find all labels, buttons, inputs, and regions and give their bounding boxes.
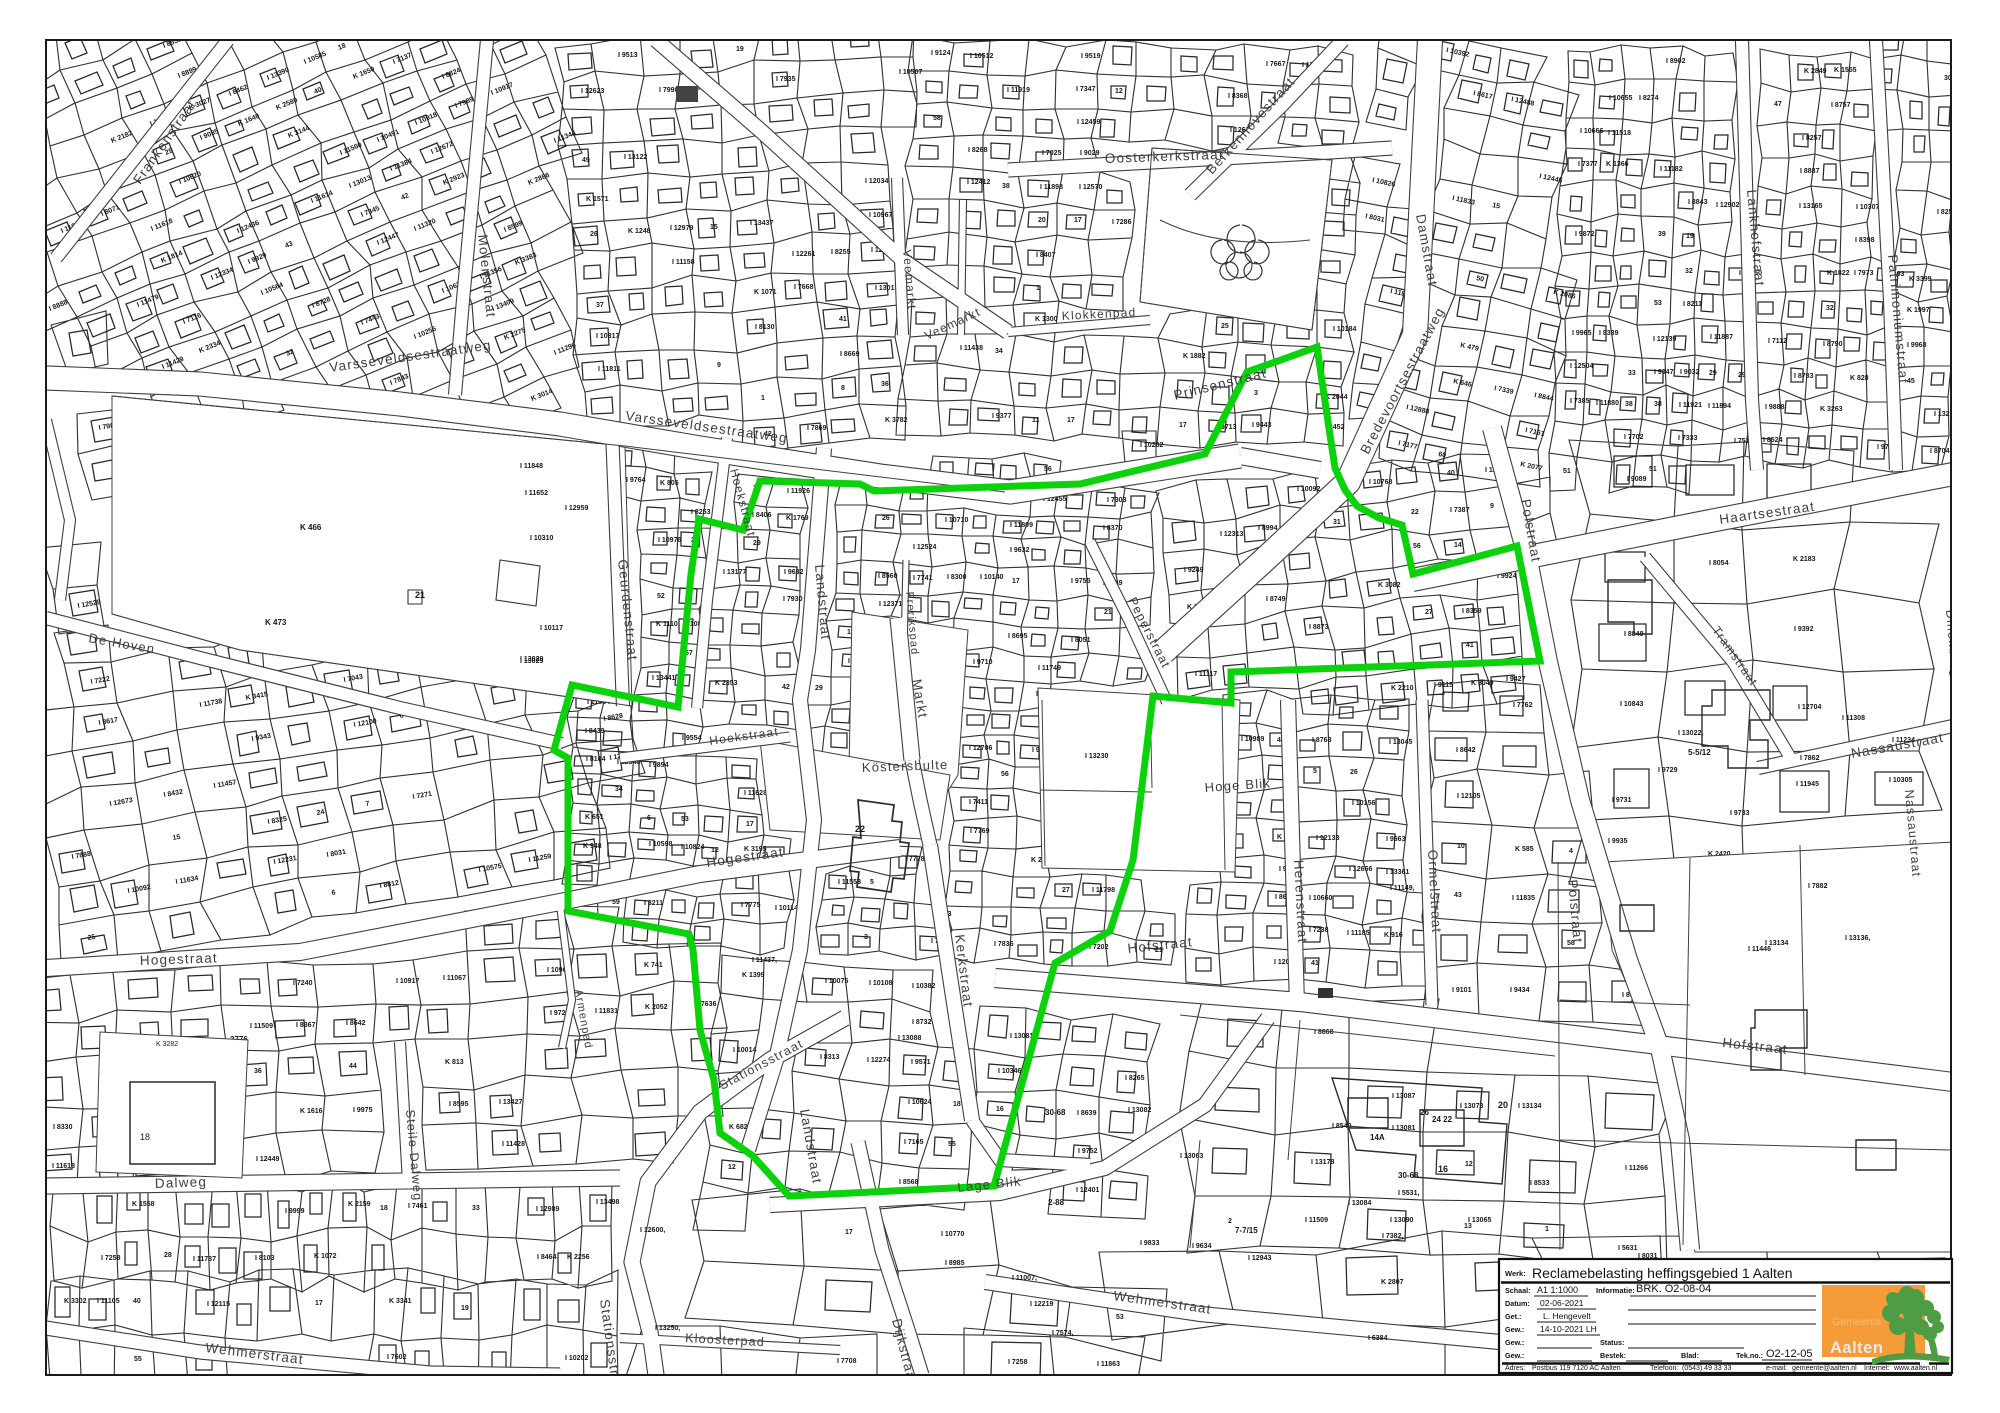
- svg-text:I 10507: I 10507: [899, 69, 922, 76]
- svg-text:I 8300: I 8300: [947, 574, 967, 581]
- svg-text:I 11898: I 11898: [1040, 184, 1063, 191]
- svg-text:I 8054: I 8054: [1709, 560, 1729, 567]
- svg-text:I 10305: I 10305: [1889, 777, 1912, 784]
- svg-text:K 1248: K 1248: [628, 228, 651, 235]
- svg-text:17: 17: [315, 1300, 323, 1307]
- svg-text:I 8313: I 8313: [820, 1054, 840, 1061]
- svg-text:Adres:: Adres:: [1505, 1365, 1525, 1372]
- svg-text:8: 8: [841, 385, 845, 392]
- svg-text:I 10598: I 10598: [649, 841, 672, 848]
- svg-text:42: 42: [782, 684, 790, 691]
- svg-text:I 7025: I 7025: [1042, 150, 1062, 157]
- svg-text:I 12979: I 12979: [670, 225, 693, 232]
- svg-text:7-7/15: 7-7/15: [1235, 1226, 1258, 1235]
- svg-text:K 741: K 741: [644, 962, 663, 969]
- svg-text:47: 47: [1774, 101, 1782, 108]
- svg-text:I 11266: I 11266: [1625, 1165, 1648, 1172]
- svg-text:I 5531,: I 5531,: [1398, 1190, 1419, 1197]
- svg-text:I 9968: I 9968: [1907, 342, 1927, 349]
- svg-text:I 12034: I 12034: [865, 178, 888, 185]
- svg-text:I 8257: I 8257: [1802, 135, 1822, 142]
- svg-text:K 948: K 948: [583, 843, 602, 850]
- svg-text:K 473: K 473: [265, 618, 287, 627]
- svg-text:I 9733: I 9733: [1730, 810, 1750, 817]
- svg-text:Datum:: Datum:: [1505, 1299, 1530, 1308]
- svg-text:I 12449: I 12449: [256, 1156, 279, 1163]
- svg-text:K 1558: K 1558: [132, 1201, 155, 1208]
- svg-text:52: 52: [657, 593, 665, 600]
- svg-text:I 13165: I 13165: [1799, 203, 1822, 210]
- svg-text:2-88: 2-88: [1048, 1198, 1065, 1207]
- svg-text:I 7668: I 7668: [794, 284, 814, 291]
- svg-text:19: 19: [461, 1305, 469, 1312]
- svg-text:K 3302: K 3302: [64, 1298, 87, 1305]
- svg-text:17: 17: [1012, 578, 1020, 585]
- svg-text:4: 4: [1569, 848, 1573, 855]
- svg-text:Aalten: Aalten: [1830, 1339, 1883, 1357]
- svg-text:I 10202: I 10202: [565, 1355, 588, 1362]
- svg-text:K 813: K 813: [445, 1059, 464, 1066]
- svg-text:I 10117: I 10117: [540, 625, 563, 632]
- svg-text:21: 21: [1104, 609, 1112, 616]
- svg-text:I 8732: I 8732: [912, 1019, 932, 1026]
- svg-text:K 3399: K 3399: [1909, 276, 1932, 283]
- svg-text:53: 53: [681, 816, 689, 823]
- svg-text:I 9124: I 9124: [931, 50, 951, 57]
- svg-text:I 7708: I 7708: [837, 1358, 857, 1365]
- svg-text:49: 49: [582, 157, 590, 164]
- svg-text:I 13081: I 13081: [1010, 1033, 1033, 1040]
- svg-text:I 13361: I 13361: [1386, 869, 1409, 876]
- svg-text:I 8211: I 8211: [1683, 301, 1702, 308]
- svg-text:17: 17: [1067, 417, 1075, 424]
- svg-text:I 10710: I 10710: [945, 517, 968, 524]
- svg-text:K 1300: K 1300: [1035, 316, 1058, 323]
- svg-text:5: 5: [870, 879, 874, 886]
- svg-text:O2-12-05: O2-12-05: [1766, 1348, 1812, 1360]
- svg-text:Gemeente: Gemeente: [1832, 1316, 1881, 1328]
- svg-text:12: 12: [1465, 1161, 1473, 1168]
- svg-text:I 10967: I 10967: [869, 212, 892, 219]
- svg-text:I 11848: I 11848: [520, 463, 543, 470]
- svg-text:41: 41: [839, 316, 847, 323]
- svg-text:I 10317: I 10317: [596, 333, 619, 340]
- svg-text:I 9032: I 9032: [1680, 369, 1700, 376]
- svg-text:I 9872: I 9872: [1575, 231, 1595, 238]
- svg-text:I 9519: I 9519: [1081, 53, 1101, 60]
- svg-text:I 10140: I 10140: [980, 574, 1003, 581]
- svg-text:Telefoon:: Telefoon:: [1650, 1365, 1678, 1372]
- svg-text:30-68: 30-68: [1045, 1108, 1066, 1117]
- svg-text:I 7775: I 7775: [741, 902, 761, 909]
- svg-text:I 11628: I 11628: [744, 790, 767, 797]
- svg-text:I 9632: I 9632: [784, 569, 804, 576]
- svg-text:K 1071: K 1071: [754, 289, 777, 296]
- svg-text:I 8398: I 8398: [1855, 237, 1875, 244]
- svg-text:19: 19: [736, 46, 744, 53]
- svg-text:I 8253: I 8253: [691, 509, 711, 516]
- svg-text:25: 25: [1221, 323, 1229, 330]
- svg-text:29: 29: [753, 540, 761, 547]
- svg-text:I 8368: I 8368: [1228, 93, 1248, 100]
- svg-text:I 10824: I 10824: [681, 844, 704, 851]
- svg-text:I 11509: I 11509: [250, 1023, 273, 1030]
- svg-text:I 11158: I 11158: [672, 259, 695, 266]
- svg-text:I 9571: I 9571: [911, 1059, 931, 1066]
- svg-text:I 8790: I 8790: [1823, 341, 1843, 348]
- svg-text:I 9347: I 9347: [1654, 369, 1674, 376]
- svg-text:15: 15: [172, 834, 181, 842]
- svg-text:I 11894: I 11894: [1708, 403, 1731, 410]
- svg-text:32: 32: [1685, 268, 1693, 275]
- svg-text:I 11518: I 11518: [1608, 130, 1631, 137]
- svg-text:I 7258: I 7258: [101, 1255, 121, 1262]
- svg-text:I 11831: I 11831: [595, 1008, 618, 1015]
- svg-text:I 9999: I 9999: [285, 1208, 305, 1215]
- svg-text:I 7741: I 7741: [913, 575, 933, 582]
- svg-text:I 7862: I 7862: [1800, 755, 1820, 762]
- svg-text:I 7382,: I 7382,: [1382, 1233, 1403, 1240]
- svg-text:I 12524: I 12524: [913, 544, 936, 551]
- svg-text:I 11105: I 11105: [97, 1298, 120, 1305]
- svg-text:I 9710: I 9710: [973, 659, 993, 666]
- svg-text:I 8370: I 8370: [1103, 525, 1123, 532]
- svg-text:I 13088: I 13088: [898, 1035, 921, 1042]
- svg-text:K 2807: K 2807: [1381, 1279, 1404, 1286]
- svg-text:36: 36: [881, 381, 889, 388]
- svg-text:I 10014: I 10014: [733, 1047, 756, 1054]
- svg-text:5: 5: [1313, 768, 1317, 775]
- svg-text:I 7778: I 7778: [905, 856, 925, 863]
- svg-text:K 3282: K 3282: [156, 1041, 178, 1048]
- svg-text:K 2183: K 2183: [1793, 556, 1816, 563]
- svg-text:I 8211: I 8211: [644, 900, 663, 907]
- svg-text:I 11067: I 11067: [443, 975, 466, 982]
- svg-text:I 7574,: I 7574,: [1052, 1330, 1073, 1337]
- svg-text:I 11652: I 11652: [525, 490, 548, 497]
- svg-text:I 8439: I 8439: [585, 728, 605, 735]
- svg-text:15: 15: [710, 224, 718, 231]
- svg-text:K 828: K 828: [1850, 375, 1869, 382]
- svg-text:K 682: K 682: [729, 1124, 748, 1131]
- svg-text:I 10666: I 10666: [1580, 128, 1603, 135]
- svg-text:I 10976: I 10976: [658, 537, 681, 544]
- svg-text:e-mail:: e-mail:: [1766, 1365, 1787, 1372]
- svg-text:32: 32: [1826, 305, 1834, 312]
- svg-text:I 9443: I 9443: [1252, 422, 1272, 429]
- svg-text:I 8985: I 8985: [945, 1260, 965, 1267]
- svg-text:I 10114: I 10114: [775, 905, 798, 912]
- svg-text:I 13437: I 13437: [750, 220, 773, 227]
- svg-text:K 3049: K 3049: [1471, 680, 1494, 687]
- svg-text:17: 17: [1074, 217, 1082, 224]
- svg-text:I 13250,: I 13250,: [655, 1325, 680, 1332]
- svg-text:Reclamebelasting heffingsgebie: Reclamebelasting heffingsgebied 1 Aalten: [1532, 1265, 1792, 1281]
- svg-text:14-10-2021 LH: 14-10-2021 LH: [1540, 1324, 1597, 1334]
- svg-text:I 12313: I 12313: [1220, 531, 1243, 538]
- svg-text:I 9434: I 9434: [1510, 987, 1530, 994]
- svg-text:34: 34: [995, 348, 1003, 355]
- svg-text:I 7762: I 7762: [1513, 702, 1533, 709]
- svg-text:27: 27: [1062, 887, 1070, 894]
- svg-text:29: 29: [815, 685, 823, 692]
- svg-text:02-06-2021: 02-06-2021: [1540, 1298, 1584, 1308]
- svg-text:I 8255: I 8255: [831, 249, 851, 256]
- svg-text:I 13441: I 13441: [652, 675, 675, 682]
- svg-text:K 651: K 651: [585, 814, 604, 821]
- svg-text:I 10156: I 10156: [1352, 800, 1375, 807]
- svg-text:K 3341: K 3341: [389, 1298, 412, 1305]
- svg-text:I 13081: I 13081: [1392, 1125, 1415, 1132]
- svg-text:Werk:: Werk:: [1505, 1269, 1526, 1278]
- svg-text:17: 17: [845, 1229, 853, 1236]
- svg-text:20: 20: [1498, 1100, 1508, 1110]
- svg-text:I 8051: I 8051: [1071, 637, 1091, 644]
- svg-text:I 11945: I 11945: [1796, 781, 1819, 788]
- svg-text:(0543) 49 33 33: (0543) 49 33 33: [1682, 1365, 1732, 1372]
- svg-text:L. Hengevelt: L. Hengevelt: [1543, 1311, 1591, 1321]
- svg-text:I 8330: I 8330: [53, 1124, 73, 1131]
- svg-text:55: 55: [948, 1141, 956, 1148]
- svg-text:I 13498: I 13498: [596, 1199, 619, 1206]
- svg-text:K 3263: K 3263: [1820, 406, 1843, 413]
- svg-text:K 1110: K 1110: [656, 621, 678, 628]
- svg-text:I 9101: I 9101: [1452, 987, 1472, 994]
- svg-text:I 12704: I 12704: [1798, 704, 1821, 711]
- svg-text:A1 1:1000: A1 1:1000: [1537, 1285, 1578, 1295]
- svg-text:I 7882: I 7882: [1808, 883, 1828, 890]
- svg-text:Gew.:: Gew.:: [1505, 1338, 1524, 1347]
- svg-text:I 10843: I 10843: [1620, 701, 1643, 708]
- svg-text:Blad:: Blad:: [1681, 1351, 1699, 1360]
- svg-text:Dalweg: Dalweg: [155, 1174, 208, 1191]
- svg-text:I 10108: I 10108: [869, 980, 892, 987]
- svg-text:I 11149,: I 11149,: [1390, 885, 1415, 892]
- svg-text:18: 18: [140, 1132, 150, 1142]
- svg-text:I 9392: I 9392: [1794, 626, 1814, 633]
- svg-text:K 2256: K 2256: [567, 1254, 590, 1261]
- svg-text:I 9513: I 9513: [618, 52, 638, 59]
- svg-text:I 13082: I 13082: [1128, 1107, 1151, 1114]
- svg-text:I 9935: I 9935: [1608, 838, 1628, 845]
- svg-text:I 11509: I 11509: [1305, 1217, 1328, 1224]
- svg-text:3: 3: [864, 934, 868, 941]
- svg-text:16: 16: [1438, 1164, 1448, 1174]
- svg-text:K 1822: K 1822: [1827, 270, 1850, 277]
- svg-text:10: 10: [1457, 843, 1465, 850]
- svg-text:I 8994: I 8994: [1258, 525, 1278, 532]
- svg-text:I 8843: I 8843: [1688, 199, 1708, 206]
- svg-text:I 7998: I 7998: [659, 87, 679, 94]
- svg-text:I 13122: I 13122: [624, 154, 647, 161]
- svg-text:I 12105: I 12105: [1457, 793, 1480, 800]
- svg-text:I 13017: I 13017: [875, 285, 898, 292]
- svg-text:19: 19: [1686, 233, 1694, 240]
- svg-text:I 13045: I 13045: [1389, 739, 1412, 746]
- svg-text:51: 51: [1649, 466, 1657, 473]
- svg-text:I 12706: I 12706: [969, 745, 992, 752]
- svg-text:51: 51: [1563, 468, 1571, 475]
- svg-text:I 9888: I 9888: [1765, 404, 1785, 411]
- svg-text:I 9663: I 9663: [1386, 836, 1406, 843]
- svg-text:18: 18: [380, 1205, 388, 1212]
- svg-text:I 8669: I 8669: [840, 351, 860, 358]
- svg-text:I 7165: I 7165: [904, 1139, 924, 1146]
- svg-text:K 2353: K 2353: [715, 680, 738, 687]
- svg-text:I 7973: I 7973: [1854, 270, 1874, 277]
- svg-text:I 7930: I 7930: [783, 596, 803, 603]
- svg-text:I 9833: I 9833: [1140, 1240, 1160, 1247]
- svg-text:36: 36: [254, 1068, 262, 1075]
- svg-text:I 9377: I 9377: [992, 413, 1012, 420]
- svg-text:I 13427: I 13427: [499, 1099, 522, 1106]
- svg-text:K 1997: K 1997: [1907, 307, 1930, 314]
- svg-text:I 7238: I 7238: [1309, 927, 1329, 934]
- svg-text:I 9115: I 9115: [1434, 682, 1453, 689]
- svg-text:I 13134: I 13134: [1518, 1103, 1541, 1110]
- svg-text:I 7377: I 7377: [1578, 161, 1598, 168]
- svg-text:34: 34: [615, 786, 623, 793]
- svg-text:56: 56: [1044, 466, 1052, 473]
- svg-text:I 13087: I 13087: [1392, 1093, 1415, 1100]
- svg-text:17: 17: [1179, 422, 1187, 429]
- svg-text:I 8524: I 8524: [1763, 437, 1783, 444]
- svg-text:I 13090: I 13090: [1390, 1217, 1413, 1224]
- svg-text:I 8104: I 8104: [586, 756, 606, 763]
- svg-text:I 9554: I 9554: [682, 735, 702, 742]
- svg-text:I 11887: I 11887: [1710, 334, 1733, 341]
- svg-text:I 10307: I 10307: [1856, 204, 1879, 211]
- svg-text:I 12989: I 12989: [536, 1206, 559, 1213]
- svg-text:I 9632: I 9632: [1010, 547, 1030, 554]
- svg-text:I 7333: I 7333: [1678, 435, 1698, 442]
- svg-text:I 7112: I 7112: [1768, 338, 1787, 345]
- svg-text:K 805: K 805: [660, 480, 679, 487]
- svg-text:I 8763: I 8763: [1312, 737, 1332, 744]
- svg-text:I 10660: I 10660: [1309, 895, 1332, 902]
- svg-text:55: 55: [134, 1356, 142, 1363]
- svg-text:11: 11: [1032, 417, 1040, 424]
- svg-text:I 9755: I 9755: [1071, 578, 1091, 585]
- svg-text:I 9729: I 9729: [1658, 767, 1678, 774]
- svg-text:26: 26: [882, 515, 890, 522]
- svg-text:38: 38: [1625, 401, 1633, 408]
- svg-text:I 8595: I 8595: [449, 1101, 469, 1108]
- svg-text:I 8902: I 8902: [1666, 58, 1686, 65]
- svg-text:5-5/12: 5-5/12: [1688, 748, 1711, 757]
- svg-text:I 10075: I 10075: [825, 978, 848, 985]
- svg-text:I 13177: I 13177: [723, 569, 746, 576]
- svg-text:I 8265: I 8265: [1125, 1075, 1145, 1082]
- svg-text:I 11798: I 11798: [1092, 887, 1115, 894]
- svg-text:I 7461: I 7461: [408, 1203, 428, 1210]
- svg-text:33: 33: [472, 1205, 480, 1212]
- svg-text:I 8560: I 8560: [878, 573, 898, 580]
- svg-text:I 12274: I 12274: [867, 1057, 890, 1064]
- svg-text:24 22: 24 22: [1432, 1115, 1453, 1124]
- svg-text:I 10282: I 10282: [1140, 442, 1163, 449]
- svg-text:I 8695: I 8695: [1008, 633, 1028, 640]
- svg-text:K 3082: K 3082: [1378, 582, 1401, 589]
- svg-text:40: 40: [1447, 470, 1455, 477]
- svg-text:I 8130: I 8130: [755, 324, 775, 331]
- svg-text:I 12600,: I 12600,: [640, 1227, 665, 1234]
- svg-text:14A: 14A: [1370, 1133, 1385, 1142]
- svg-text:I 7347: I 7347: [1076, 86, 1096, 93]
- svg-text:I 8359: I 8359: [1462, 608, 1482, 615]
- svg-text:I 8407: I 8407: [1036, 252, 1056, 259]
- svg-text:Köstersbulte: Köstersbulte: [862, 757, 949, 775]
- svg-text:I 5631: I 5631: [1618, 1245, 1638, 1252]
- svg-text:I 11737: I 11737: [193, 1256, 216, 1263]
- svg-text:I 9764: I 9764: [626, 477, 646, 484]
- svg-text:I 9634: I 9634: [1192, 1243, 1212, 1250]
- svg-text:43: 43: [1454, 892, 1462, 899]
- svg-text:I 12666: I 12666: [1349, 866, 1372, 873]
- svg-text:I 11428: I 11428: [502, 1141, 525, 1148]
- svg-text:K 1769: K 1769: [786, 515, 809, 522]
- svg-text:I 11863: I 11863: [1097, 1361, 1120, 1368]
- svg-text:I 12133: I 12133: [1316, 835, 1339, 842]
- svg-text:Informatie:: Informatie:: [1596, 1286, 1635, 1295]
- svg-text:44: 44: [349, 1063, 357, 1070]
- svg-text:gemeente@aalten.nl: gemeente@aalten.nl: [1792, 1365, 1857, 1372]
- svg-text:I 12570: I 12570: [1079, 184, 1102, 191]
- svg-text:53: 53: [1116, 1314, 1124, 1321]
- svg-text:K 1882: K 1882: [1183, 353, 1206, 360]
- svg-text:K 466: K 466: [300, 523, 322, 532]
- svg-text:28: 28: [164, 1252, 172, 1259]
- svg-text:I 8642: I 8642: [346, 1020, 366, 1027]
- svg-text:I 9731: I 9731: [1612, 797, 1632, 804]
- svg-text:I 12371: I 12371: [879, 601, 902, 608]
- svg-text:I 7303: I 7303: [1107, 497, 1127, 504]
- svg-text:22: 22: [1411, 509, 1419, 516]
- svg-text:I 8103: I 8103: [255, 1255, 275, 1262]
- svg-text:I 9965: I 9965: [1572, 330, 1592, 337]
- svg-text:I 10092: I 10092: [1297, 486, 1320, 493]
- svg-text:30-68: 30-68: [1398, 1171, 1419, 1180]
- svg-text:12: 12: [1115, 88, 1123, 95]
- svg-text:I 8642: I 8642: [1456, 747, 1476, 754]
- svg-text:39: 39: [1658, 231, 1666, 238]
- svg-text:41: 41: [1311, 960, 1319, 967]
- svg-text:Internet:: Internet:: [1864, 1365, 1890, 1372]
- svg-text:K 1072: K 1072: [314, 1253, 337, 1260]
- svg-text:I 8367: I 8367: [296, 1022, 316, 1029]
- svg-text:Status:: Status:: [1600, 1338, 1624, 1347]
- svg-text:I 10346: I 10346: [998, 1068, 1021, 1075]
- svg-text:I 11926: I 11926: [787, 488, 810, 495]
- svg-text:I 13063: I 13063: [1180, 1153, 1203, 1160]
- svg-text:I 13136,: I 13136,: [1845, 935, 1870, 942]
- svg-text:I 13022,: I 13022,: [1678, 730, 1703, 737]
- svg-text:17: 17: [746, 821, 754, 828]
- svg-text:Postbus 119 7120 AC Aalten: Postbus 119 7120 AC Aalten: [1532, 1365, 1621, 1372]
- svg-text:I 10624: I 10624: [908, 1099, 931, 1106]
- svg-text:I 7286: I 7286: [1112, 219, 1132, 226]
- svg-text:I 11835: I 11835: [1512, 895, 1535, 902]
- svg-text:38: 38: [1654, 401, 1662, 408]
- svg-text:I 12139: I 12139: [1653, 336, 1676, 343]
- svg-text:I 13230: I 13230: [1085, 753, 1108, 760]
- svg-text:41: 41: [1466, 642, 1474, 649]
- svg-text:56: 56: [1413, 543, 1421, 550]
- svg-text:I 11185: I 11185: [1347, 930, 1370, 937]
- svg-text:I 11921: I 11921: [1679, 402, 1702, 409]
- svg-text:27: 27: [1425, 609, 1433, 616]
- svg-text:I 7935: I 7935: [776, 76, 796, 83]
